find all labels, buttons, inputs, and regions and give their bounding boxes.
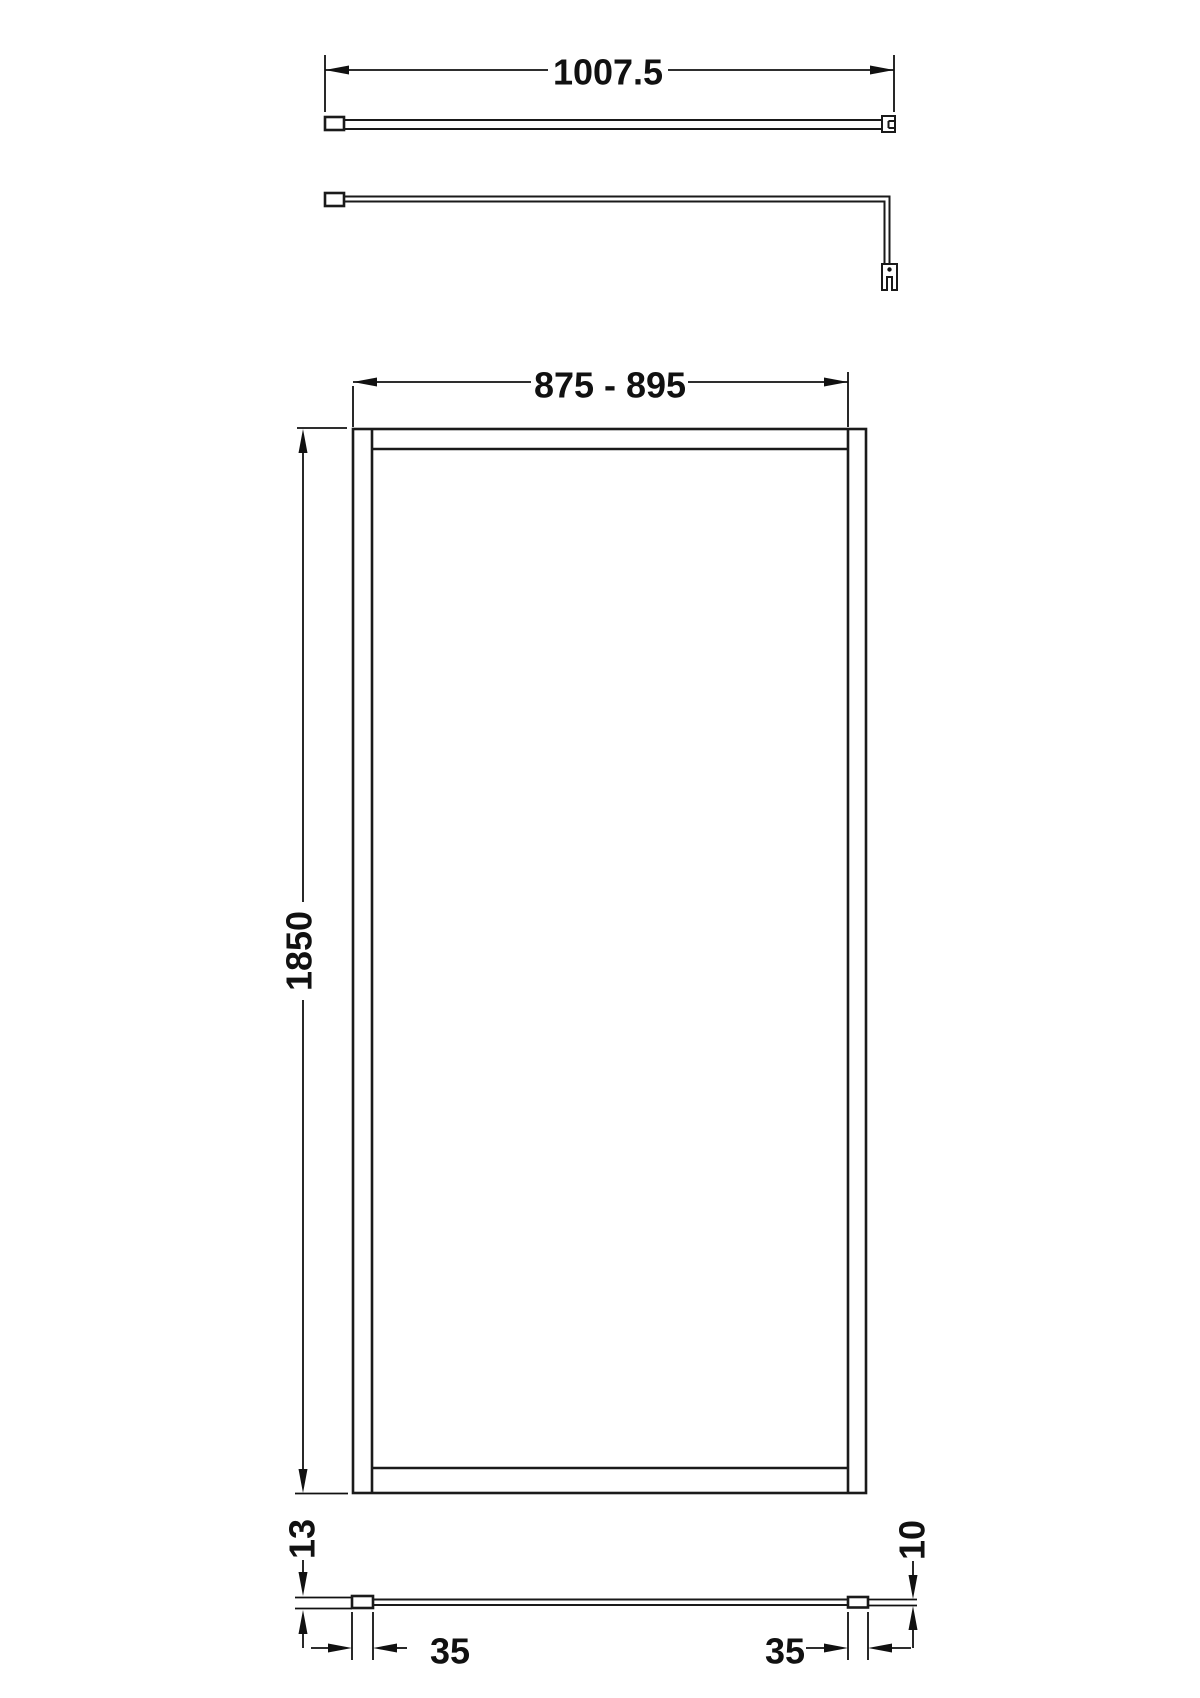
arrowhead-right [870, 66, 894, 75]
arm-bar [344, 120, 882, 129]
glass-thickness-label: 10 [892, 1520, 933, 1560]
glass-thickness-dimension: 10 [868, 1520, 933, 1648]
arrowhead-right [824, 1644, 848, 1653]
arrowhead-left [353, 378, 377, 387]
arrowhead-right [824, 378, 848, 387]
channel-depth-label: 13 [282, 1519, 323, 1559]
shower-screen-drawing: 1007.5 875 - 895 [0, 0, 1200, 1698]
arrowhead-left [868, 1644, 892, 1653]
left-profile-width-label: 35 [430, 1631, 470, 1672]
glass-panel [374, 451, 847, 1467]
screen-section-view: 13 10 35 [282, 1519, 933, 1672]
wall-channel-block [352, 1596, 373, 1608]
screen-frame [353, 429, 866, 1493]
arm-length-dimension: 1007.5 [325, 52, 894, 113]
arrowhead-up [299, 1610, 308, 1634]
arrowhead-left [373, 1644, 397, 1653]
arrowhead-down [909, 1575, 918, 1599]
left-profile-width-dimension: 35 [311, 1612, 470, 1672]
arrowhead-right [328, 1644, 352, 1653]
arm-length-label: 1007.5 [553, 52, 663, 93]
screen-width-dimension: 875 - 895 [353, 365, 848, 428]
clamp-screw [887, 267, 891, 271]
arrowhead-down [299, 1469, 308, 1493]
right-profile-width-label: 35 [765, 1631, 805, 1672]
arrowhead-up [299, 429, 308, 453]
screen-height-dimension: 1850 [279, 428, 349, 1494]
arm-side-view [325, 193, 897, 290]
screen-width-label: 875 - 895 [534, 365, 686, 406]
wall-mount-block [325, 117, 344, 130]
arrowhead-left [325, 66, 349, 75]
arrowhead-up [909, 1606, 918, 1630]
right-profile-width-dimension: 35 [765, 1612, 911, 1672]
arm-bar-bent [344, 197, 890, 265]
technical-drawing-page: 1007.5 875 - 895 [0, 0, 1200, 1698]
arrowhead-down [299, 1572, 308, 1596]
screen-height-label: 1850 [279, 911, 320, 991]
wall-mount-block [325, 193, 344, 206]
support-profile-block [848, 1597, 868, 1608]
channel-depth-dimension: 13 [282, 1519, 353, 1648]
arm-plan-view: 1007.5 [325, 52, 896, 133]
screen-front-view: 875 - 895 1850 [279, 365, 867, 1494]
